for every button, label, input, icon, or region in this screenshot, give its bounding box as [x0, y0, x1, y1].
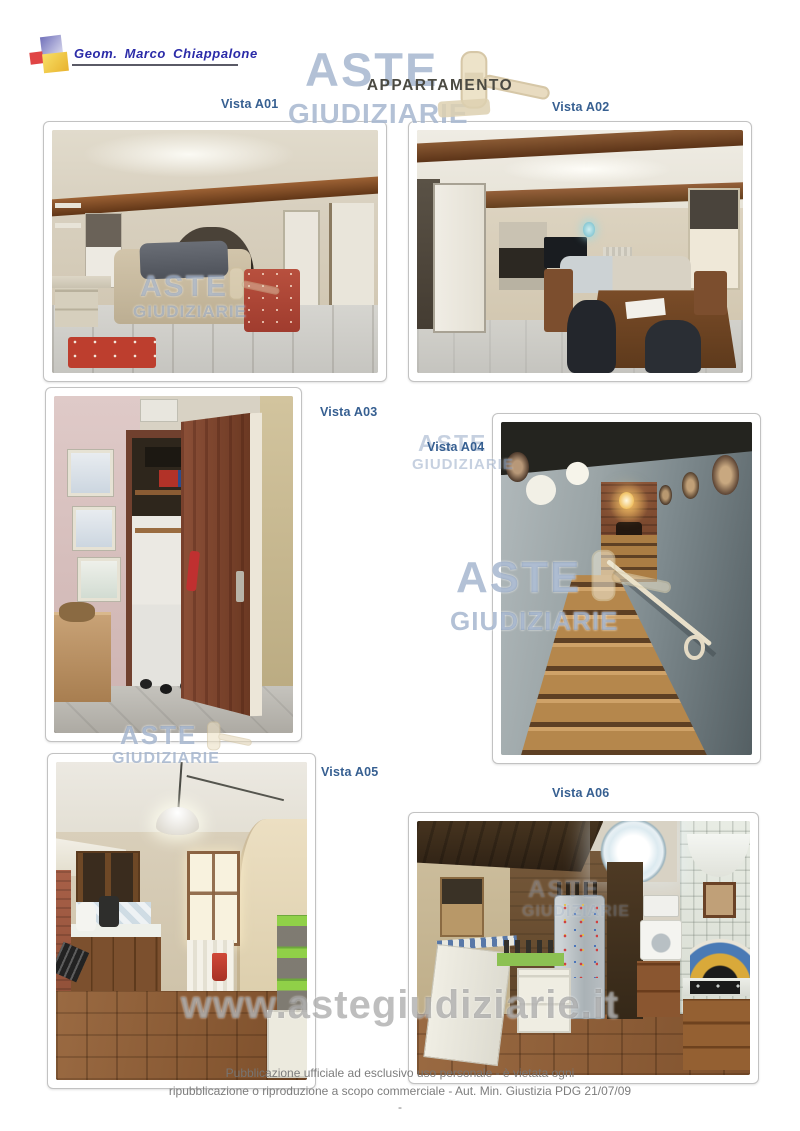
a01-rug: [68, 337, 156, 369]
a05-red-bucket: [212, 953, 227, 982]
a06-arch-mosaic: [690, 923, 750, 984]
label-vista-a01: Vista A01: [221, 97, 278, 111]
a03-picture1: [68, 450, 112, 496]
a06-beams: [417, 821, 603, 872]
photo-vista-a05: [47, 753, 316, 1089]
a06-microwave: [643, 895, 678, 917]
scene-a06: [417, 821, 750, 1075]
label-vista-a06: Vista A06: [552, 786, 609, 800]
a03-picture2: [73, 507, 115, 550]
logo-square-yellow: [42, 52, 69, 74]
watermark-aste-junction: ASTE: [120, 722, 197, 748]
footer-disclaimer-line2: ripubblicazione o riproduzione a scopo c…: [0, 1084, 800, 1098]
author-underline: [72, 64, 238, 66]
a06-washer: [640, 920, 682, 960]
a04-plate2: [682, 472, 700, 499]
a03-right-wall: [260, 396, 293, 733]
a06-picture-frame: [703, 882, 736, 918]
scene-a05: [56, 762, 307, 1080]
a03-vent-box: [140, 399, 178, 421]
photo-vista-a03: [45, 387, 302, 742]
page-title: APPARTAMENTO: [300, 77, 580, 95]
a05-rice-cooker: [76, 902, 96, 931]
watermark-aste-center: ASTE: [456, 556, 581, 600]
a05-fryer: [99, 896, 119, 928]
a02-clothes-dark2: [645, 320, 700, 373]
a03-door-edge: [250, 413, 262, 717]
scene-a02: [417, 130, 743, 373]
author-name: Geom. Marco Chiappalone: [74, 46, 258, 61]
a05-window: [187, 851, 241, 946]
document-page: Geom. Marco Chiappalone ASTE GIUDIZIARIE…: [0, 0, 800, 1131]
a03-picture3: [78, 558, 120, 601]
watermark-site: www.astegiudiziarie.it: [0, 983, 800, 1028]
a02-chair-right: [694, 271, 727, 315]
a06-green-counter: [497, 953, 564, 966]
gavel-icon-center: [565, 548, 675, 614]
a02-beds: [560, 256, 690, 292]
photo-vista-a06: [408, 812, 759, 1084]
scene-a03: [54, 396, 293, 733]
a06-left-cabinet: [440, 877, 484, 937]
label-vista-a03: Vista A03: [320, 405, 377, 419]
footer-disclaimer-line1: Pubblicazione ufficiale ad esclusivo uso…: [0, 1066, 800, 1080]
a02-fireplace: [499, 222, 548, 290]
gavel-icon-a01: [212, 266, 282, 308]
a01-drawers: [55, 288, 97, 327]
studio-logo: [28, 34, 78, 76]
a03-dresser: [54, 612, 111, 703]
photo-vista-a02: [408, 121, 752, 382]
a03-door-lock: [236, 571, 244, 601]
a04-handrail-scroll: [684, 635, 705, 660]
label-vista-a05: Vista A05: [321, 765, 378, 779]
a04-plate3: [659, 485, 672, 505]
a06-counter-items: [504, 940, 557, 953]
watermark-giudiziarie-a06: GIUDIZIARIE: [522, 904, 630, 920]
a03-box-red: [159, 470, 178, 487]
gavel-icon-junction: [192, 720, 254, 758]
a01-desk: [52, 276, 111, 288]
a02-door-white: [433, 183, 486, 333]
label-vista-a02: Vista A02: [552, 100, 609, 114]
watermark-aste-a06: ASTE: [528, 878, 600, 902]
a04-light-glow: [619, 492, 634, 509]
a02-clothes-dark1: [567, 300, 616, 373]
a03-basket: [59, 602, 95, 622]
label-vista-a04: Vista A04: [427, 440, 484, 454]
photo-vista-a01: [43, 121, 387, 382]
footer-page-mark: -: [0, 1100, 800, 1114]
scene-a01: [52, 130, 378, 373]
a01-shelves: [55, 203, 81, 208]
watermark-giudiziarie-a04label: GIUDIZIARIE: [412, 457, 514, 472]
a02-lamp: [583, 222, 594, 237]
